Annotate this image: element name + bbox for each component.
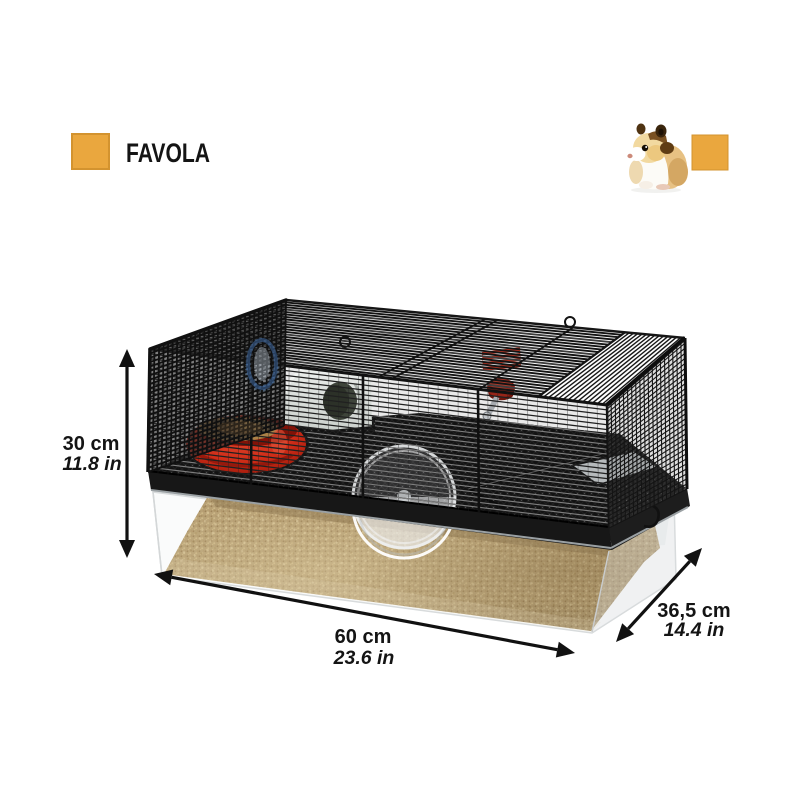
svg-text:60 cm: 60 cm: [335, 626, 392, 648]
svg-text:30 cm: 30 cm: [63, 433, 120, 455]
svg-text:23.6 in: 23.6 in: [333, 647, 395, 669]
svg-text:FAVOLA: FAVOLA: [126, 138, 210, 168]
svg-text:14.4 in: 14.4 in: [664, 619, 725, 641]
svg-text:11.8 in: 11.8 in: [62, 453, 121, 475]
